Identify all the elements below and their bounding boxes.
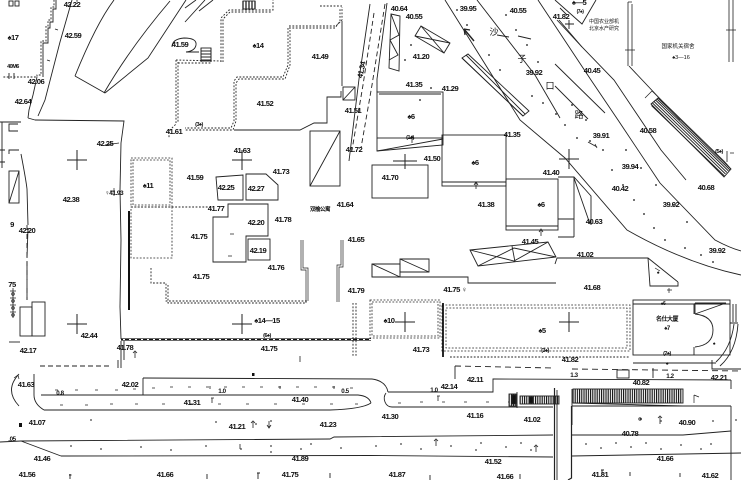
svg-text:42.02: 42.02 [122,380,139,389]
svg-text:9: 9 [10,220,14,229]
svg-text:41.56: 41.56 [19,470,36,479]
svg-text:42.19: 42.19 [250,246,267,255]
svg-text:41.78: 41.78 [117,343,134,352]
svg-text:♠11: ♠11 [143,181,155,190]
svg-text:(2♠): (2♠) [663,351,671,357]
svg-text:41.75: 41.75 [193,272,211,281]
svg-text:41.30: 41.30 [382,412,399,421]
svg-text:41.59: 41.59 [187,173,204,182]
svg-text:♠3—16: ♠3—16 [672,55,690,61]
svg-text:子: 子 [517,54,526,64]
svg-text:40.90: 40.90 [679,418,696,427]
svg-text:(3♠): (3♠) [541,348,549,354]
svg-text:42.59: 42.59 [65,31,82,40]
svg-text:41.70: 41.70 [382,173,399,182]
svg-text:42.17: 42.17 [20,346,37,355]
svg-text:42.20: 42.20 [248,218,265,227]
svg-text:41.72: 41.72 [346,145,363,154]
svg-text:41.21: 41.21 [229,422,247,431]
svg-text:41.46: 41.46 [34,454,51,463]
svg-text:♠14: ♠14 [253,41,265,50]
svg-text:41.66: 41.66 [157,470,174,479]
svg-text:41.45: 41.45 [522,237,540,246]
svg-text:41.51: 41.51 [345,106,363,115]
svg-text:1.3: 1.3 [570,372,578,379]
svg-text:♠—5: ♠—5 [572,0,588,7]
svg-text:39.91: 39.91 [593,131,611,140]
svg-text:(5♠): (5♠) [715,149,723,155]
svg-text:41.38: 41.38 [478,200,495,209]
svg-text:0.5: 0.5 [341,388,349,395]
svg-text:双榆公寓: 双榆公寓 [310,205,331,213]
svg-text:国家机关宿舍: 国家机关宿舍 [661,42,695,50]
svg-text:41.68: 41.68 [584,283,601,292]
svg-text:75: 75 [8,280,17,289]
svg-text:41.02: 41.02 [577,250,594,259]
svg-text:1.2: 1.2 [666,373,674,380]
svg-text:(7♠): (7♠) [577,9,585,15]
svg-text:41.62: 41.62 [702,471,719,480]
svg-text:41.77: 41.77 [208,204,225,213]
svg-text:41.52: 41.52 [257,99,274,108]
svg-text:42.44: 42.44 [81,331,99,340]
svg-text:41.82: 41.82 [553,12,570,21]
svg-text:41.75: 41.75 [261,344,279,353]
svg-text:♠6: ♠6 [471,158,479,167]
svg-text:1.0: 1.0 [218,388,226,395]
svg-text:路: 路 [574,109,583,120]
svg-text:(1♠): (1♠) [406,135,414,141]
svg-text:40.58: 40.58 [640,126,657,135]
svg-text:♀41.93: ♀41.93 [105,190,124,197]
svg-text:40.42: 40.42 [612,184,629,193]
svg-text:40.55: 40.55 [510,6,528,15]
svg-text:42.11: 42.11 [467,375,484,384]
svg-text:41.29: 41.29 [442,84,459,93]
svg-text:39.94: 39.94 [622,162,640,171]
svg-text:♠7: ♠7 [664,326,671,332]
svg-text:40.68: 40.68 [698,183,715,192]
svg-text:41.16: 41.16 [467,411,484,420]
svg-text:42.20: 42.20 [19,226,36,235]
svg-text:41.50: 41.50 [424,154,441,163]
svg-text:♠17: ♠17 [8,33,19,42]
svg-text:41.75: 41.75 [282,470,300,479]
svg-text:39.92: 39.92 [526,68,543,77]
svg-text:41.63: 41.63 [234,146,251,155]
svg-text:名仕大厦: 名仕大厦 [656,315,680,323]
svg-text:♠6: ♠6 [407,112,415,121]
svg-text:41.35: 41.35 [504,130,522,139]
svg-text:41.31: 41.31 [184,398,202,407]
svg-text:♠5: ♠5 [538,326,547,335]
svg-text:(3♠): (3♠) [195,122,203,128]
svg-text:42.25: 42.25 [218,183,236,192]
svg-text:41.23: 41.23 [320,420,337,429]
svg-text:42.64: 42.64 [15,97,33,106]
svg-text:41.81: 41.81 [592,470,610,479]
svg-text:41.34: 41.34 [355,60,367,79]
svg-text:41.82: 41.82 [562,355,579,364]
svg-text:42.21: 42.21 [711,373,729,382]
svg-text:42.22: 42.22 [64,0,81,9]
svg-text:41.65: 41.65 [348,235,366,244]
svg-text:42.38: 42.38 [63,195,80,204]
svg-text:沙: 沙 [489,27,498,37]
svg-text:39.95: 39.95 [460,4,478,13]
svg-text:40.78: 40.78 [622,429,639,438]
svg-text:41.87: 41.87 [389,470,406,479]
svg-text:40.63: 40.63 [586,217,603,226]
svg-text:42.27: 42.27 [248,184,265,193]
svg-text:41.20: 41.20 [413,52,430,61]
svg-text:41.07: 41.07 [29,418,46,427]
svg-text:41.52: 41.52 [485,457,502,466]
svg-text:41.40: 41.40 [543,168,560,177]
svg-text:42.25: 42.25 [97,139,115,148]
svg-text:41.89: 41.89 [292,454,309,463]
svg-text:40M6: 40M6 [7,64,19,70]
svg-text:41.73: 41.73 [413,345,430,354]
svg-text:0.8: 0.8 [56,390,64,397]
svg-text:口: 口 [545,81,554,91]
svg-text:1.0: 1.0 [430,387,438,394]
svg-text:40.55: 40.55 [406,12,424,21]
svg-text:♠: ♠ [666,361,669,367]
svg-text:41.49: 41.49 [312,52,329,61]
svg-text:39.92: 39.92 [709,246,726,255]
svg-text:41.73: 41.73 [273,167,290,176]
svg-text:40.45: 40.45 [584,66,602,75]
svg-text:41.02: 41.02 [524,415,541,424]
svg-text:41.64: 41.64 [337,200,355,209]
svg-text:♠6: ♠6 [537,200,545,209]
svg-text:41.75 ♀: 41.75 ♀ [443,285,466,294]
svg-text:41.66: 41.66 [497,472,514,480]
svg-text:41.66: 41.66 [657,454,674,463]
svg-text:42.14: 42.14 [441,382,459,391]
svg-text:41.75: 41.75 [191,232,209,241]
svg-text:41.63: 41.63 [18,380,35,389]
svg-text:中国农业部机: 中国农业部机 [589,18,619,25]
svg-text:北京水产研究: 北京水产研究 [589,25,619,32]
svg-text:40.82: 40.82 [633,378,650,387]
svg-text:♠6: ♠6 [661,301,666,307]
svg-text:♠: ♠ [713,341,716,347]
svg-text:♠10: ♠10 [384,316,395,325]
svg-text:41.61: 41.61 [166,127,184,136]
svg-text:(6♠): (6♠) [263,333,271,339]
svg-text:41.79: 41.79 [348,286,365,295]
svg-text:♠14—15: ♠14—15 [254,316,281,325]
svg-text:41.35: 41.35 [406,80,424,89]
svg-text:41.40: 41.40 [292,395,309,404]
svg-text:41.76: 41.76 [268,263,285,272]
svg-text:.05: .05 [8,436,16,443]
svg-text:42.06: 42.06 [28,77,45,86]
svg-text:41.78: 41.78 [275,215,292,224]
svg-text:39.92: 39.92 [663,200,680,209]
svg-text:41.59: 41.59 [172,40,189,49]
